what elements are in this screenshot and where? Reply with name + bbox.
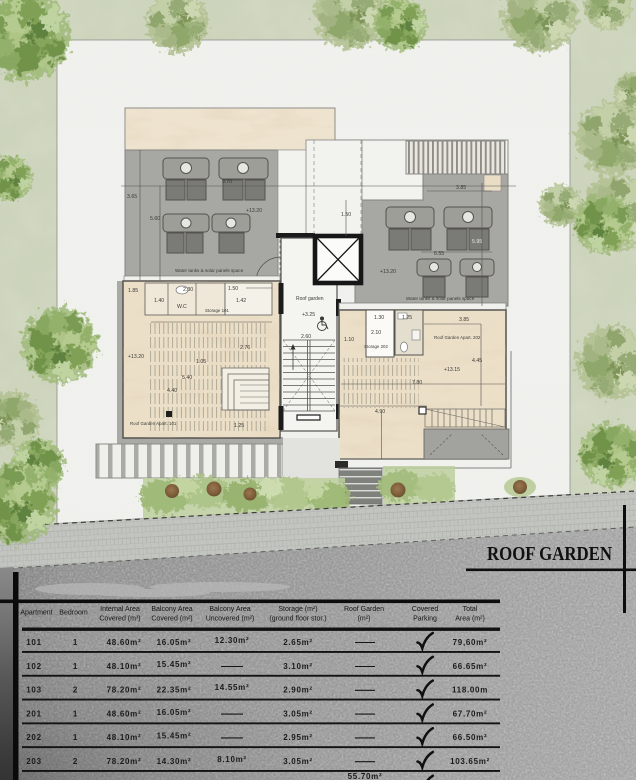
svg-text:103: 103 [26, 686, 41, 695]
svg-text:(ground floor stor.): (ground floor stor.) [269, 616, 326, 623]
svg-text:2: 2 [73, 757, 78, 766]
svg-text:+13.15: +13.15 [444, 367, 460, 373]
svg-text:48.10m²: 48.10m² [107, 733, 142, 742]
svg-text:15.45m²: 15.45m² [157, 732, 192, 741]
svg-text:Uncovered (m²): Uncovered (m²) [206, 616, 255, 623]
svg-text:Bedroom: Bedroom [59, 610, 88, 617]
svg-text:8.10m²: 8.10m² [217, 755, 247, 764]
svg-text:202: 202 [26, 733, 41, 742]
svg-text:3.05m²: 3.05m² [283, 709, 313, 718]
svg-text:2.30: 2.30 [183, 287, 193, 293]
svg-text:1.40: 1.40 [154, 298, 164, 304]
svg-text:6.55: 6.55 [434, 251, 444, 257]
svg-text:1: 1 [73, 709, 78, 718]
svg-text:Roof garden: Roof garden [296, 296, 324, 302]
svg-text:+13.20: +13.20 [246, 208, 262, 214]
svg-text:ROOF GARDEN: ROOF GARDEN [487, 543, 612, 565]
svg-text:1.50: 1.50 [341, 212, 351, 218]
svg-text:1.85: 1.85 [128, 288, 138, 294]
svg-text:3.10m²: 3.10m² [283, 662, 313, 671]
svg-text:1.25: 1.25 [402, 315, 412, 321]
svg-text:Area (m²): Area (m²) [455, 616, 485, 623]
svg-text:1.42: 1.42 [236, 298, 246, 304]
svg-text:5.95: 5.95 [472, 239, 482, 245]
svg-text:78.20m²: 78.20m² [107, 686, 142, 695]
svg-text:Covered (m³): Covered (m³) [99, 616, 140, 623]
svg-text:101: 101 [26, 638, 41, 647]
svg-text:Internal Area: Internal Area [100, 606, 140, 613]
svg-text:118.00m: 118.00m [452, 686, 488, 695]
svg-text:48.10m²: 48.10m² [107, 662, 142, 671]
svg-text:201: 201 [26, 709, 41, 718]
svg-text:2.65m²: 2.65m² [283, 638, 313, 647]
svg-text:1: 1 [73, 733, 78, 742]
svg-text:Water tanks & solar panels spa: Water tanks & solar panels space [406, 296, 475, 301]
svg-text:1.10: 1.10 [344, 337, 354, 343]
svg-text:+13.20: +13.20 [380, 269, 396, 275]
svg-text:7.80: 7.80 [412, 380, 422, 386]
svg-text:Covered (m²): Covered (m²) [151, 616, 192, 623]
svg-text:(m²): (m²) [358, 616, 371, 623]
svg-text:67.70m²: 67.70m² [453, 709, 488, 718]
svg-text:Water tanks & solar panels spa: Water tanks & solar panels space [175, 268, 244, 273]
svg-text:W.C: W.C [177, 304, 187, 310]
svg-text:79,60m²: 79,60m² [453, 638, 488, 647]
svg-text:Roof Garden Apart. 202: Roof Garden Apart. 202 [434, 335, 481, 340]
svg-text:3.85: 3.85 [459, 317, 469, 323]
svg-text:55.70m²: 55.70m² [348, 772, 383, 780]
svg-text:48.60m²: 48.60m² [107, 709, 142, 718]
svg-text:Covered: Covered [412, 606, 439, 613]
svg-text:14.30m²: 14.30m² [157, 757, 192, 766]
svg-text:Roof Garden Apart. 101: Roof Garden Apart. 101 [130, 421, 177, 426]
svg-text:14.55m²: 14.55m² [215, 683, 250, 692]
svg-text:Storage 101: Storage 101 [205, 308, 229, 313]
svg-text:2: 2 [73, 686, 78, 695]
svg-text:4.90: 4.90 [375, 409, 385, 415]
svg-text:203: 203 [26, 757, 41, 766]
svg-text:22.35m²: 22.35m² [157, 686, 192, 695]
svg-text:16.05m²: 16.05m² [157, 708, 192, 717]
svg-text:3.65: 3.65 [127, 194, 137, 200]
svg-text:+3.25: +3.25 [302, 312, 315, 318]
svg-text:1.25: 1.25 [234, 423, 244, 429]
svg-text:Storage 202: Storage 202 [364, 344, 388, 349]
svg-text:9.70: 9.70 [222, 179, 232, 185]
svg-text:3.85: 3.85 [456, 185, 466, 191]
svg-text:15.45m²: 15.45m² [157, 660, 192, 669]
svg-text:1: 1 [73, 638, 78, 647]
svg-text:66.65m²: 66.65m² [453, 662, 488, 671]
svg-text:16.05m²: 16.05m² [157, 638, 192, 647]
svg-text:66.50m²: 66.50m² [453, 733, 488, 742]
svg-text:103.65m²: 103.65m² [450, 757, 490, 766]
svg-text:Roof Garden: Roof Garden [344, 606, 384, 613]
svg-text:3.05m²: 3.05m² [283, 757, 313, 766]
svg-text:4.45: 4.45 [472, 358, 482, 364]
svg-text:5.60: 5.60 [150, 216, 160, 222]
svg-text:2.90m²: 2.90m² [283, 686, 313, 695]
svg-text:5.40: 5.40 [182, 375, 192, 381]
svg-text:Total: Total [463, 606, 478, 613]
svg-text:+13.20: +13.20 [128, 354, 144, 360]
svg-text:Storage (m²): Storage (m²) [278, 606, 317, 613]
svg-text:102: 102 [26, 662, 41, 671]
svg-text:2.95m²: 2.95m² [283, 733, 313, 742]
svg-text:Balcony Area: Balcony Area [151, 606, 192, 613]
svg-text:78.20m²: 78.20m² [107, 757, 142, 766]
svg-text:2.76: 2.76 [240, 345, 250, 351]
svg-text:Balcony Area: Balcony Area [209, 606, 250, 613]
svg-text:2.60: 2.60 [301, 334, 311, 340]
svg-text:12.30m²: 12.30m² [215, 636, 250, 645]
svg-text:48.60m²: 48.60m² [107, 638, 142, 647]
svg-text:2.10: 2.10 [371, 330, 381, 336]
svg-text:4.40: 4.40 [167, 388, 177, 394]
svg-text:1: 1 [73, 662, 78, 671]
svg-text:1.30: 1.30 [374, 315, 384, 321]
svg-text:1.50: 1.50 [228, 286, 238, 292]
svg-text:1.05: 1.05 [196, 359, 206, 365]
svg-text:Apartment: Apartment [20, 610, 52, 617]
svg-text:Parking: Parking [413, 616, 437, 623]
